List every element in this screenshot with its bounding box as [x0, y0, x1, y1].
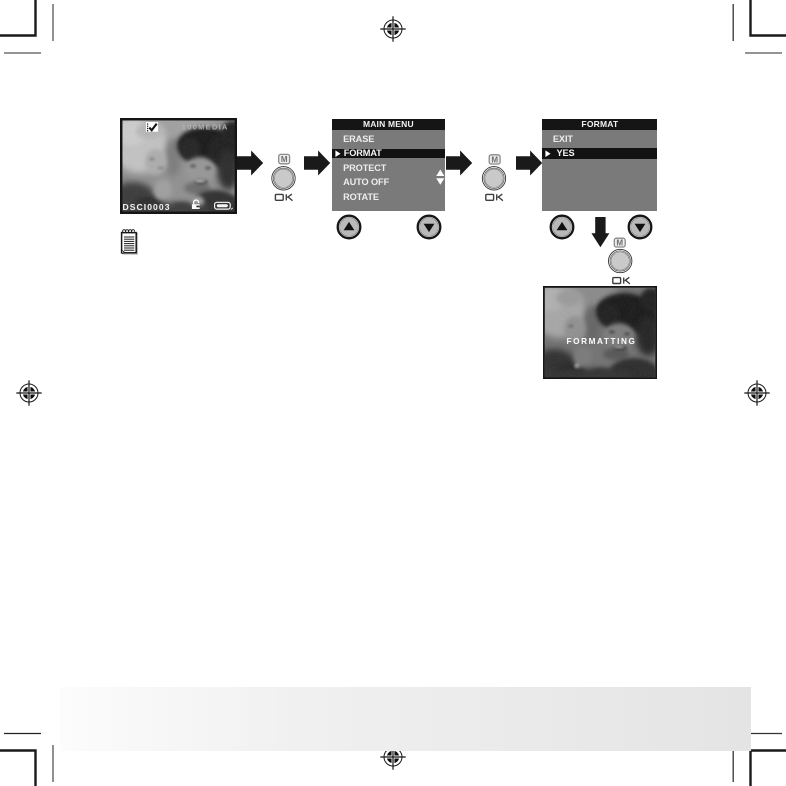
svg-text:100MEDIA: 100MEDIA	[182, 122, 229, 131]
svg-text:M: M	[281, 155, 288, 164]
svg-text:M: M	[491, 155, 498, 164]
svg-text:M: M	[616, 239, 623, 248]
svg-text:FORMATTING: FORMATTING	[567, 336, 637, 345]
svg-text:DSCI0003: DSCI0003	[123, 202, 171, 212]
